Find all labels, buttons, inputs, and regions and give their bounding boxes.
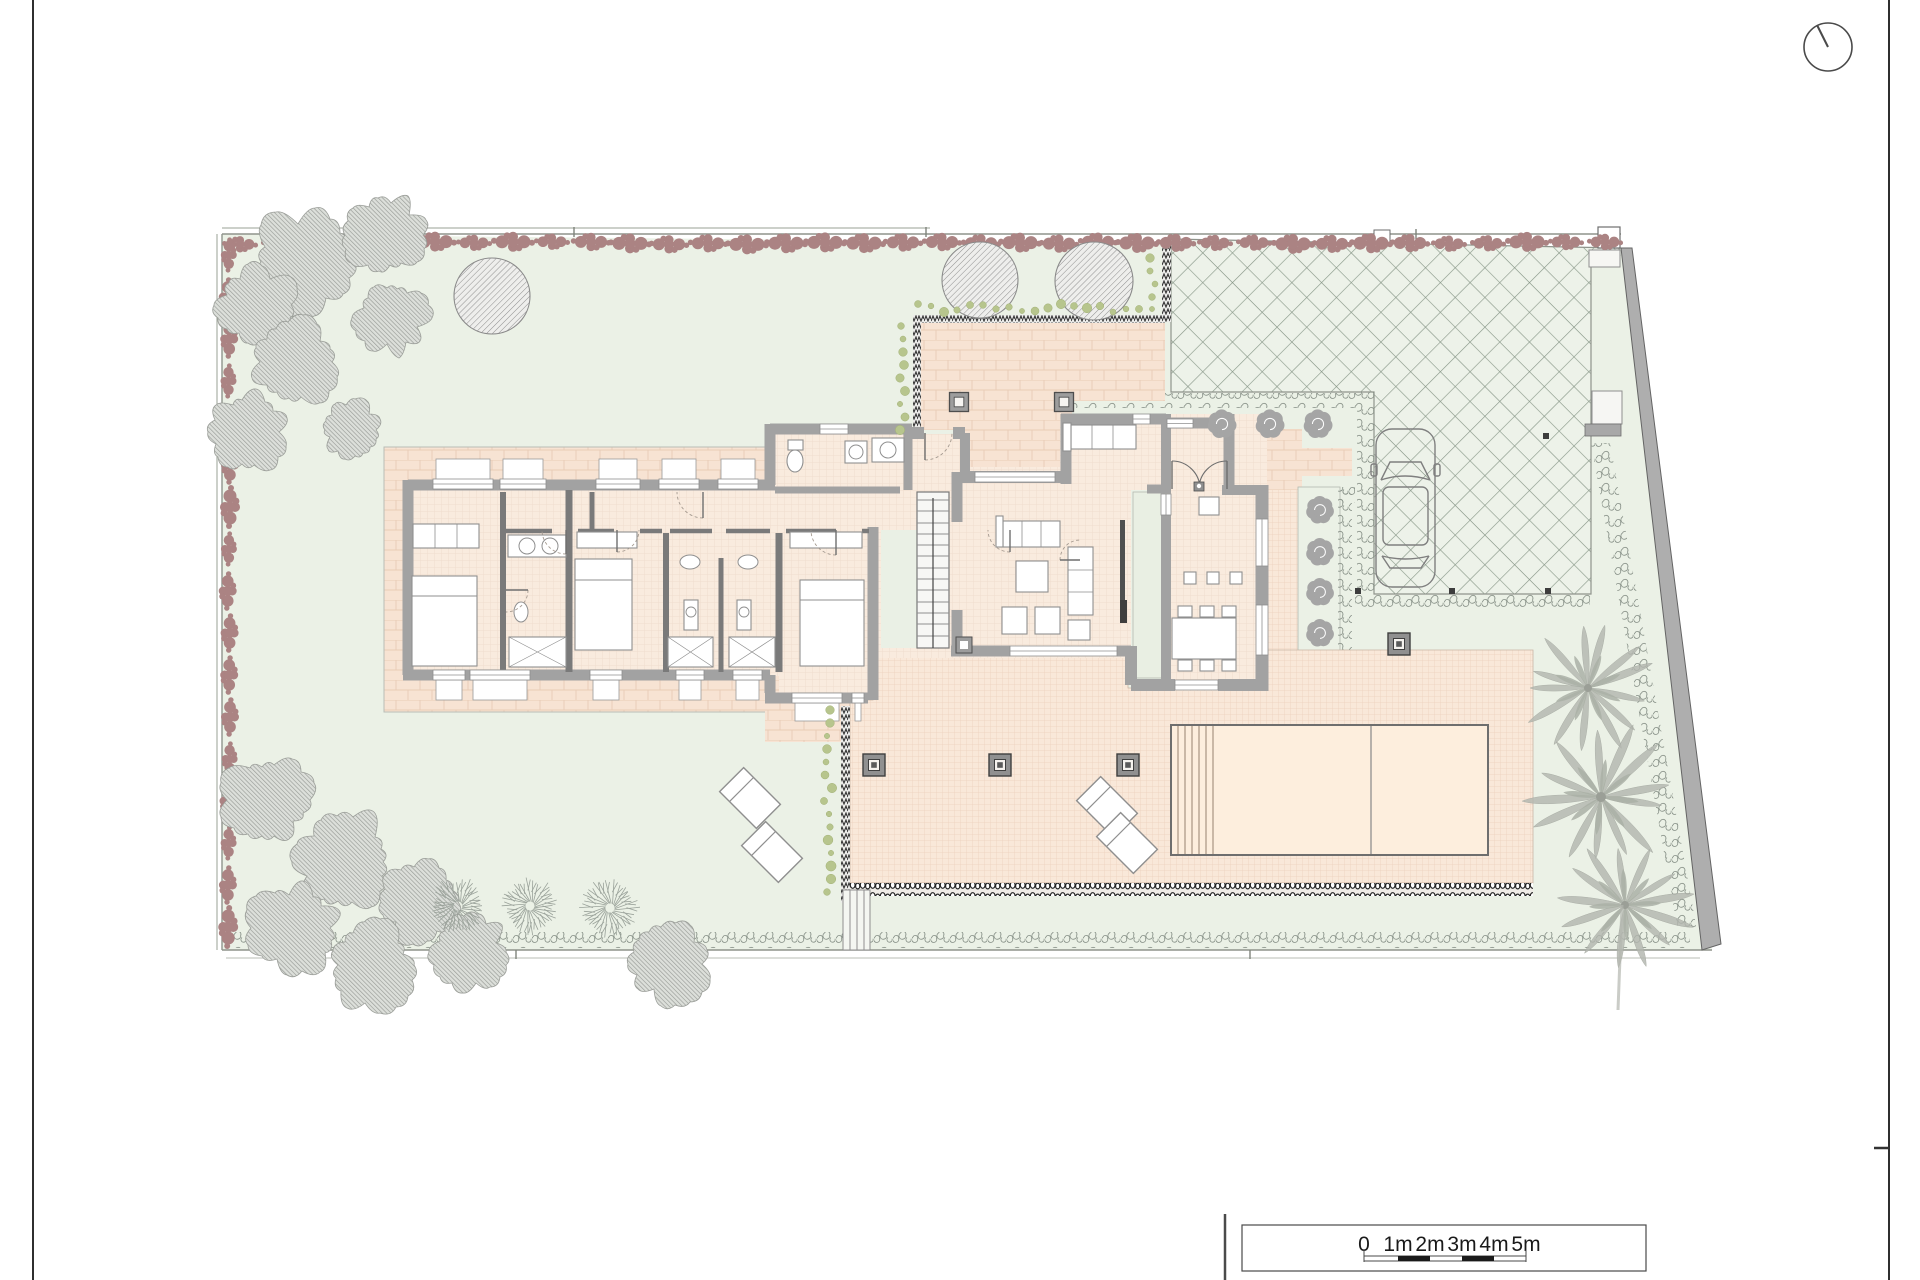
svg-text:1m: 1m [1383,1233,1412,1256]
svg-text:3m: 3m [1447,1233,1476,1256]
svg-text:2m: 2m [1415,1233,1444,1256]
svg-text:4m: 4m [1479,1233,1508,1256]
